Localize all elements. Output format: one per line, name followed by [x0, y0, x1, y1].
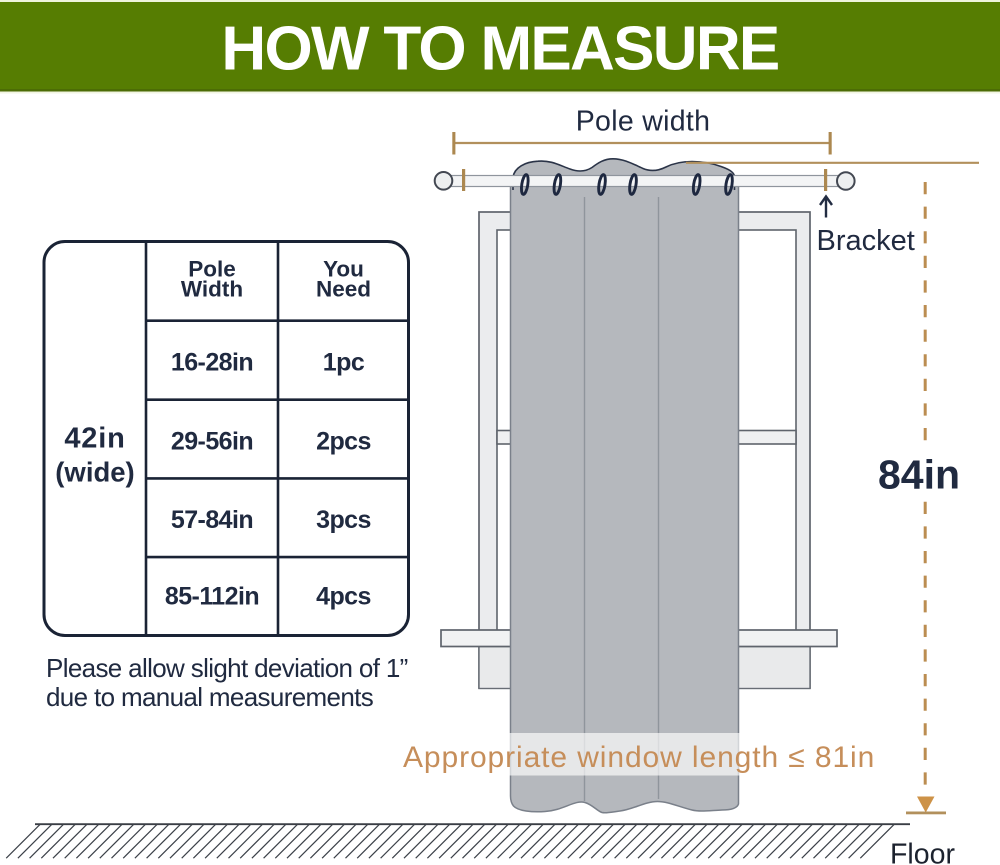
- svg-text:Floor: Floor: [890, 839, 955, 865]
- svg-text:Need: Need: [316, 277, 371, 302]
- svg-text:42in: 42in: [64, 423, 125, 455]
- svg-text:57-84in: 57-84in: [171, 506, 253, 534]
- svg-text:Width: Width: [181, 277, 243, 302]
- svg-text:Pole width: Pole width: [576, 106, 711, 138]
- svg-text:Bracket: Bracket: [817, 225, 915, 257]
- svg-text:Please allow slight deviation: Please allow slight deviation of 1”: [46, 653, 408, 683]
- svg-text:4pcs: 4pcs: [316, 583, 371, 611]
- svg-text:85-112in: 85-112in: [165, 583, 259, 611]
- svg-text:due to manual measurements: due to manual measurements: [46, 682, 374, 712]
- svg-text:2pcs: 2pcs: [316, 428, 371, 456]
- svg-text:84in: 84in: [878, 452, 960, 498]
- svg-text:1pc: 1pc: [323, 349, 365, 377]
- svg-text:HOW TO MEASURE: HOW TO MEASURE: [221, 15, 778, 84]
- svg-text:16-28in: 16-28in: [171, 349, 253, 377]
- svg-text:Appropriate window length ≤ 81: Appropriate window length ≤ 81in: [403, 741, 875, 774]
- svg-text:3pcs: 3pcs: [316, 506, 371, 534]
- svg-text:(wide): (wide): [55, 457, 134, 488]
- svg-text:29-56in: 29-56in: [171, 428, 253, 456]
